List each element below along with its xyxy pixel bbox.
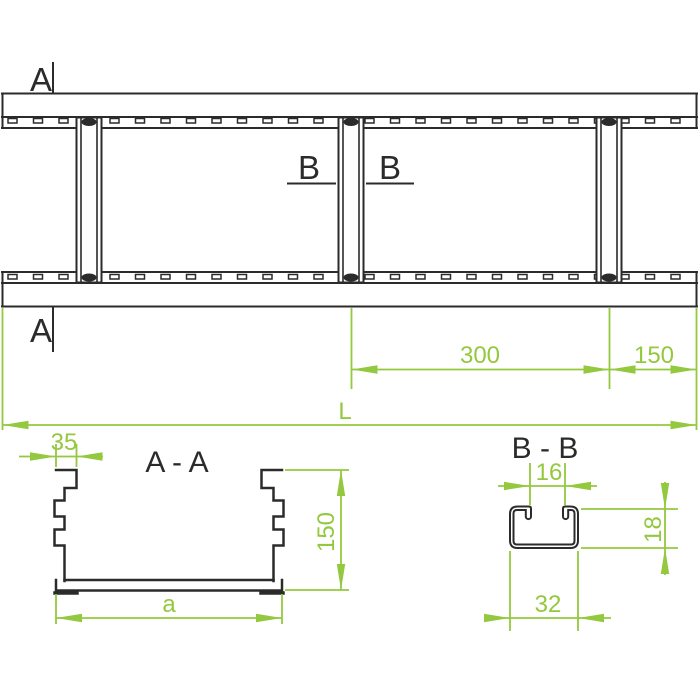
- rail-slot: [416, 275, 425, 280]
- rail-slot: [59, 119, 68, 124]
- dim-a: a: [56, 591, 282, 624]
- rail-slot: [467, 119, 476, 124]
- dim-150-label: 150: [634, 342, 674, 369]
- rail-slot: [212, 275, 221, 280]
- arrow-right: [578, 614, 604, 622]
- arrow-left: [484, 614, 510, 622]
- rail-slot: [314, 275, 323, 280]
- rail-slot: [493, 275, 502, 280]
- rail-slot: [8, 119, 17, 124]
- dim-a-label: a: [162, 591, 176, 618]
- rail-slot: [161, 119, 170, 124]
- dim-300: 300: [352, 342, 610, 374]
- rung-end-weld: [602, 118, 617, 126]
- dim-32-label: 32: [535, 591, 562, 618]
- rail-slot: [493, 119, 502, 124]
- dim-35: 35: [19, 429, 103, 467]
- dim-total-length: L: [3, 398, 697, 429]
- arrow-left: [504, 482, 530, 490]
- arrow-left: [352, 365, 378, 373]
- rung-end-weld: [344, 274, 359, 282]
- arrow-right: [77, 452, 103, 460]
- section-a-letter-top: A: [30, 61, 52, 98]
- rail-slot: [569, 275, 578, 280]
- rail-slot: [569, 119, 578, 124]
- rung-end-weld: [82, 274, 97, 282]
- rail-slot: [136, 275, 145, 280]
- rail-slot: [263, 275, 272, 280]
- rail-slot: [289, 275, 298, 280]
- dim-16: 16: [498, 459, 597, 505]
- dim-16-label: 16: [536, 459, 563, 486]
- bottom-outer-line: [56, 580, 282, 591]
- rail-slot: [365, 119, 374, 124]
- rail-slot: [391, 275, 400, 280]
- arrow-right: [671, 365, 697, 373]
- dim-18: 18: [581, 482, 678, 575]
- rail-slot: [544, 275, 553, 280]
- drawing-canvas: A A B B 300 150: [0, 0, 700, 700]
- dim-150-plan: 150: [610, 342, 697, 374]
- rail-slot: [212, 119, 221, 124]
- section-b-letter-right: B: [379, 149, 401, 186]
- section-a-letter-bottom: A: [30, 312, 52, 349]
- rungs: [77, 118, 622, 283]
- cable-ladder-technical-drawing: A A B B 300 150: [0, 0, 700, 700]
- rung: [597, 118, 622, 283]
- plan-dimensions: 300 150 L: [3, 308, 697, 430]
- rail-slot: [289, 119, 298, 124]
- arrow-right: [565, 482, 591, 490]
- rail-slot: [110, 119, 119, 124]
- arrow-left: [3, 421, 29, 429]
- section-aa-title: A - A: [145, 446, 208, 479]
- dim-32: 32: [484, 551, 611, 631]
- rail-slot: [263, 119, 272, 124]
- arrow-right: [671, 421, 697, 429]
- rail-slot: [8, 275, 17, 280]
- rail-slot: [110, 275, 119, 280]
- rail-slot: [467, 275, 476, 280]
- rail-slot: [314, 119, 323, 124]
- dim-150-section-label: 150: [313, 512, 340, 552]
- arrow-left: [56, 614, 82, 622]
- rail-slot: [365, 275, 374, 280]
- rung-end-weld: [602, 274, 617, 282]
- dim-300-label: 300: [460, 342, 500, 369]
- rail-slot: [238, 119, 247, 124]
- dim-18-label: 18: [640, 516, 667, 543]
- rung-end-weld: [344, 118, 359, 126]
- section-aa-view: A - A 35 150: [19, 429, 349, 624]
- rail-slot: [671, 275, 680, 280]
- rail-slot: [518, 119, 527, 124]
- rail-slot: [391, 119, 400, 124]
- section-b-letter-left: B: [298, 149, 320, 186]
- arrow-top: [337, 470, 345, 496]
- rail-slot: [442, 275, 451, 280]
- rung-c-profile: [510, 507, 578, 549]
- rail-slot: [416, 119, 425, 124]
- arrow-bottom: [661, 548, 669, 574]
- rail-slot: [187, 275, 196, 280]
- arrow-left: [610, 365, 636, 373]
- rung: [339, 118, 364, 283]
- rail-slot: [671, 119, 680, 124]
- rail-slot: [161, 275, 170, 280]
- arrow-bottom: [337, 564, 345, 590]
- rung-end-weld: [82, 118, 97, 126]
- left-side-rail-wall: [55, 470, 77, 581]
- arrow-right: [256, 614, 282, 622]
- rail-slot: [238, 275, 247, 280]
- rail-slot: [59, 275, 68, 280]
- rail-slot: [646, 119, 655, 124]
- section-bb-view: B - B 16 18 32: [484, 432, 678, 631]
- right-side-rail-wall: [262, 470, 284, 581]
- rail-slot: [34, 119, 43, 124]
- rail-slot: [187, 119, 196, 124]
- rail-slot: [136, 119, 145, 124]
- rail-slot: [34, 275, 43, 280]
- arrow-top: [661, 483, 669, 509]
- arrow-right: [584, 365, 610, 373]
- rail-slot: [544, 119, 553, 124]
- dim-35-label: 35: [51, 429, 78, 456]
- dim-150-section: 150: [285, 470, 349, 590]
- rail-slot: [518, 275, 527, 280]
- dim-L-label: L: [338, 398, 351, 425]
- rail-slot: [646, 275, 655, 280]
- plan-view: A A B B 300 150: [2, 61, 697, 430]
- section-aa-profile: [55, 470, 284, 593]
- rail-slot: [442, 119, 451, 124]
- rung: [77, 118, 102, 283]
